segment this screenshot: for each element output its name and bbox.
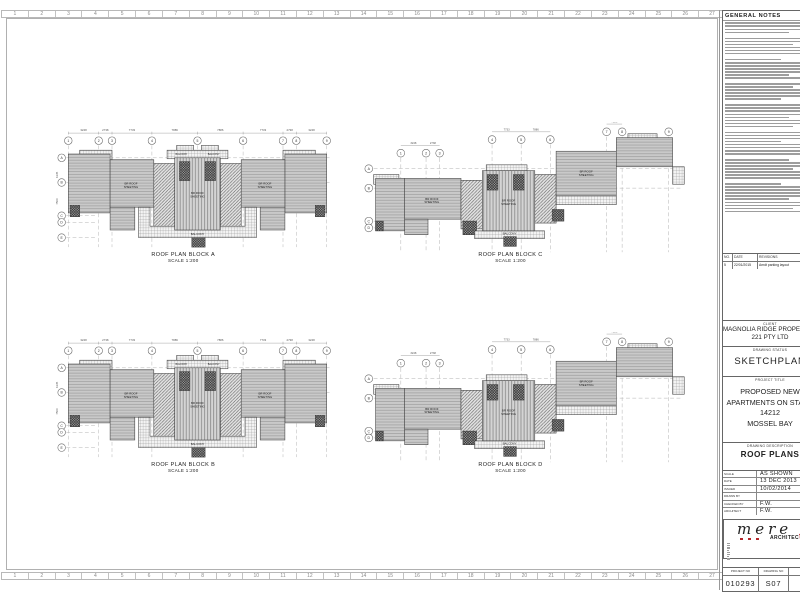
- drawing-status-panel: DRAWING STATUS SKETCHPLAN: [723, 347, 800, 377]
- drawing-frame-border: [6, 18, 718, 570]
- plan-scale: SCALE 1:200: [55, 258, 312, 263]
- ruler-number: 4: [82, 11, 109, 17]
- microtext-line: [725, 144, 800, 146]
- svg-text:2738: 2738: [102, 128, 109, 132]
- microtext-line: [725, 50, 800, 52]
- microtext-line: [725, 41, 800, 43]
- ruler-number: 21: [538, 11, 565, 17]
- ruler-number: 11: [270, 11, 297, 17]
- svg-text:SHEETING: SHEETING: [579, 173, 595, 177]
- footer-headers: PROJECT NO DRAWING NO REV: [723, 568, 800, 576]
- microtext-line: [725, 83, 800, 85]
- ruler-number: 18: [458, 11, 485, 17]
- ruler-number: 14: [351, 573, 378, 579]
- svg-text:6: 6: [549, 138, 551, 142]
- ruler-number: 21: [538, 573, 565, 579]
- info-label: ARCHITECT: [723, 508, 757, 515]
- ruler-number: 7: [163, 573, 190, 579]
- svg-text:SHEETING: SHEETING: [424, 410, 440, 414]
- svg-text:6135: 6135: [55, 381, 59, 388]
- svg-text:7733: 7733: [260, 128, 267, 132]
- ruler-number: 2: [29, 11, 56, 17]
- drawing-status-value: SKETCHPLAN: [723, 356, 800, 367]
- ruler-number: 5: [109, 11, 136, 17]
- svg-text:3: 3: [111, 349, 113, 353]
- microtext-line: [727, 550, 729, 551]
- microtext-line: [725, 74, 789, 76]
- ruler-number: 1: [2, 573, 29, 579]
- microtext-line: [727, 543, 730, 544]
- microtext-line: [725, 86, 793, 88]
- svg-text:BALCONY: BALCONY: [208, 363, 220, 366]
- ruler-number: 3: [56, 11, 83, 17]
- svg-text:BALCONY: BALCONY: [191, 442, 205, 446]
- svg-text:3248: 3248: [410, 141, 417, 145]
- info-row: ARCHITECTF.W.: [723, 508, 800, 515]
- microtext-line: [725, 150, 800, 152]
- microtext-line: [725, 153, 800, 155]
- ruler-number: 20: [511, 11, 538, 17]
- project-title-label: PROJECT TITLE: [723, 378, 800, 382]
- microtext-line: [725, 192, 800, 194]
- plan-caption: ROOF PLAN BLOCK BSCALE 1:200: [55, 462, 312, 473]
- svg-text:BALCONY: BALCONY: [175, 363, 187, 366]
- svg-text:SHEETING: SHEETING: [501, 202, 517, 206]
- svg-text:7733: 7733: [129, 128, 136, 132]
- info-row: DRAWN BY: [723, 493, 800, 500]
- info-label: DATE: [723, 478, 757, 484]
- roof-plan-drawing: 1 2 3 4 5 6 7 8 9 A B C D324827387733788…: [362, 122, 692, 262]
- microtext-line: [725, 123, 800, 125]
- svg-text:7886: 7886: [217, 128, 224, 132]
- ruler-number: 12: [297, 573, 324, 579]
- microtext-line: [725, 120, 800, 122]
- ruler-number: 13: [324, 11, 351, 17]
- microtext-line: [725, 211, 800, 213]
- project-title-line: PROPOSED NEW: [723, 387, 800, 398]
- logo-red-dot: [740, 538, 743, 541]
- info-row: SCALEAS SHOWN: [723, 471, 800, 478]
- general-notes-microtext: [723, 22, 800, 212]
- ruler-number: 24: [619, 573, 646, 579]
- svg-text:3248: 3248: [80, 338, 87, 342]
- footer-values: 010293 S07: [723, 576, 800, 592]
- microtext-line: [725, 208, 793, 210]
- drawing-description-panel: DRAWING DESCRIPTION ROOF PLANS: [723, 443, 800, 471]
- microtext-line: [725, 195, 800, 197]
- revision-cell: 22/01/2015: [733, 262, 758, 269]
- roof-plan-drawing: 1 2 3 4 5 6 7 8 9 A B C D324827387733788…: [362, 332, 692, 472]
- microtext-line: [725, 107, 800, 109]
- svg-text:2738: 2738: [286, 338, 293, 342]
- ruler-number: 22: [565, 11, 592, 17]
- info-label: SCALE: [723, 471, 757, 477]
- svg-text:3248: 3248: [410, 351, 417, 355]
- microtext-line: [725, 32, 789, 34]
- svg-text:7886: 7886: [172, 338, 179, 342]
- project-title-panel: PROJECT TITLE PROPOSED NEWAPARTMENTS ON …: [723, 377, 800, 443]
- svg-text:4: 4: [151, 139, 153, 143]
- microtext-line: [725, 114, 800, 116]
- svg-text:SHEETING: SHEETING: [190, 404, 205, 408]
- svg-text:7733: 7733: [129, 338, 136, 342]
- svg-text:SHEETING: SHEETING: [190, 194, 205, 198]
- info-label: DRAWN BY: [723, 493, 757, 499]
- info-row: DATE13 DEC 2013: [723, 478, 800, 485]
- ruler-number: 8: [190, 11, 217, 17]
- svg-text:4: 4: [491, 138, 493, 142]
- ruler-bottom: 1234567891011121314151617181920212223242…: [1, 572, 734, 580]
- svg-text:7733: 7733: [504, 127, 511, 131]
- svg-text:4: 4: [151, 349, 153, 353]
- plan-caption: ROOF PLAN BLOCK CSCALE 1:200: [362, 252, 659, 263]
- ruler-number: 14: [351, 11, 378, 17]
- title-block-divider: [719, 10, 720, 590]
- ruler-number: 26: [672, 573, 699, 579]
- info-label: ISSUED: [723, 486, 757, 492]
- svg-text:2: 2: [98, 139, 100, 143]
- ruler-number: 3: [56, 573, 83, 579]
- info-value: F.W.: [757, 501, 800, 507]
- microtext-line: [725, 68, 800, 70]
- svg-text:3: 3: [111, 139, 113, 143]
- svg-text:SHEETING: SHEETING: [424, 200, 440, 204]
- svg-text:9: 9: [668, 130, 670, 134]
- ruler-number: 17: [431, 11, 458, 17]
- svg-text:9: 9: [326, 139, 328, 143]
- drawing-description-label: DRAWING DESCRIPTION: [723, 444, 800, 448]
- svg-text:7: 7: [282, 139, 284, 143]
- info-row: CHECKED BYF.W.: [723, 501, 800, 508]
- svg-text:2: 2: [98, 349, 100, 353]
- info-value: AS SHOWN: [757, 471, 800, 477]
- svg-text:BALCONY: BALCONY: [191, 232, 205, 236]
- svg-text:SHEETING: SHEETING: [124, 395, 139, 399]
- ruler-number: 19: [485, 573, 512, 579]
- project-title-line: MOSSEL BAY: [723, 419, 800, 430]
- svg-text:5: 5: [197, 349, 199, 353]
- ruler-number: 23: [592, 573, 619, 579]
- revisions-header: NO. DATE REVISIONS: [723, 254, 800, 262]
- ruler-number: 24: [619, 11, 646, 17]
- svg-text:7500: 7500: [55, 408, 59, 415]
- ruler-number: 26: [672, 11, 699, 17]
- ruler-number: 11: [270, 573, 297, 579]
- svg-text:7886: 7886: [217, 338, 224, 342]
- svg-text:BALCONY: BALCONY: [208, 153, 220, 156]
- ruler-number: 7: [163, 11, 190, 17]
- architect-logo-box: mere ARCHITECtURE: [723, 519, 800, 559]
- revisions-col-desc: REVISIONS: [758, 254, 800, 261]
- microtext-line: [725, 117, 789, 119]
- svg-text:6: 6: [549, 348, 551, 352]
- microtext-line: [725, 29, 800, 31]
- info-value: 10/02/2014: [757, 486, 800, 492]
- svg-text:1: 1: [400, 151, 402, 155]
- revision-cell: Amdt parking layout: [758, 262, 800, 269]
- project-no-label: PROJECT NO: [723, 568, 759, 576]
- svg-text:3248: 3248: [308, 338, 315, 342]
- roof-plan-block-c: 1 2 3 4 5 6 7 8 9 A B C D324827387733788…: [362, 122, 692, 262]
- svg-text:2738: 2738: [430, 351, 437, 355]
- microtext-line: [725, 22, 800, 24]
- svg-text:SHEETING: SHEETING: [501, 412, 517, 416]
- svg-text:7886: 7886: [611, 122, 618, 124]
- revisions-rows: 522/01/2015Amdt parking layout: [723, 262, 800, 269]
- info-value: F.W.: [757, 508, 800, 515]
- svg-text:2: 2: [425, 151, 427, 155]
- revision-row: 522/01/2015Amdt parking layout: [723, 262, 800, 269]
- svg-text:8: 8: [295, 139, 297, 143]
- svg-text:1: 1: [400, 361, 402, 365]
- logo-red-dot: [756, 538, 759, 541]
- microtext-line: [725, 98, 781, 100]
- microtext-line: [727, 552, 730, 553]
- plan-scale: SCALE 1:200: [362, 258, 659, 263]
- plan-caption: ROOF PLAN BLOCK DSCALE 1:200: [362, 462, 659, 473]
- ruler-number: 16: [404, 11, 431, 17]
- ruler-number: 9: [217, 573, 244, 579]
- plan-scale: SCALE 1:200: [55, 468, 312, 473]
- client-panel: CLIENT MAGNOLIA RIDGE PROPERTIES221 PTY …: [723, 321, 800, 347]
- general-notes-title: GENERAL NOTES: [723, 11, 800, 21]
- roof-plan-block-a: 32482738773378867886773327383248 1 2 3 4…: [55, 122, 340, 262]
- svg-text:7886: 7886: [533, 337, 540, 341]
- info-value: 13 DEC 2013: [757, 478, 800, 484]
- info-label: CHECKED BY: [723, 501, 757, 507]
- client-name: MAGNOLIA RIDGE PROPERTIES221 PTY LTD: [723, 326, 800, 342]
- roof-plan-drawing: 32482738773378867886773327383248 1 2 3 4…: [55, 332, 340, 472]
- drawing-sheet: 1234567891011121314151617181920212223242…: [0, 0, 800, 600]
- revisions-col-date: DATE: [733, 254, 758, 261]
- architect-address-microtext: [724, 542, 727, 560]
- microtext-line: [725, 92, 800, 94]
- microtext-line: [725, 95, 800, 97]
- svg-text:5: 5: [520, 138, 522, 142]
- ruler-number: 19: [485, 11, 512, 17]
- info-table: SCALEAS SHOWNDATE13 DEC 2013ISSUED10/02/…: [723, 471, 800, 516]
- svg-text:3: 3: [439, 151, 441, 155]
- ruler-number: 17: [431, 573, 458, 579]
- ruler-number: 8: [190, 573, 217, 579]
- svg-text:6: 6: [242, 349, 244, 353]
- microtext-line: [725, 205, 800, 207]
- ruler-number: 6: [136, 11, 163, 17]
- svg-text:1: 1: [67, 349, 69, 353]
- svg-text:6: 6: [242, 139, 244, 143]
- svg-text:6135: 6135: [55, 171, 59, 178]
- microtext-line: [725, 198, 789, 200]
- svg-text:4: 4: [491, 348, 493, 352]
- microtext-line: [727, 554, 730, 555]
- svg-text:7886: 7886: [611, 332, 618, 334]
- microtext-line: [725, 38, 800, 40]
- microtext-line: [725, 165, 800, 167]
- microtext-line: [725, 177, 800, 179]
- svg-text:7733: 7733: [260, 338, 267, 342]
- microtext-line: [725, 59, 781, 61]
- svg-text:5: 5: [197, 139, 199, 143]
- ruler-number: 20: [511, 573, 538, 579]
- microtext-line: [725, 147, 800, 149]
- architect-logo-wordmark: ARCHITECtURE: [770, 531, 800, 541]
- svg-text:2738: 2738: [286, 128, 293, 132]
- svg-text:BALCONY: BALCONY: [503, 232, 517, 236]
- microtext-line: [725, 202, 800, 204]
- svg-text:8: 8: [621, 340, 623, 344]
- plan-caption: ROOF PLAN BLOCK ASCALE 1:200: [55, 252, 312, 263]
- ruler-number: 1: [2, 11, 29, 17]
- microtext-line: [725, 135, 800, 137]
- svg-text:2738: 2738: [430, 141, 437, 145]
- svg-text:5: 5: [520, 348, 522, 352]
- microtext-line: [725, 77, 800, 79]
- ruler-number: 2: [29, 573, 56, 579]
- microtext-line: [725, 104, 800, 106]
- ruler-number: 15: [377, 11, 404, 17]
- microtext-line: [725, 159, 789, 161]
- svg-text:8: 8: [621, 130, 623, 134]
- revisions-col-no: NO.: [723, 254, 733, 261]
- microtext-line: [725, 171, 800, 173]
- microtext-line: [725, 126, 793, 128]
- roof-plan-block-d: 1 2 3 4 5 6 7 8 9 A B C D324827387733788…: [362, 332, 692, 472]
- svg-text:9: 9: [326, 349, 328, 353]
- svg-text:7500: 7500: [55, 198, 59, 205]
- ruler-number: 15: [377, 573, 404, 579]
- ruler-number: 5: [109, 573, 136, 579]
- rev-value: [789, 576, 800, 592]
- roof-plan-drawing: 32482738773378867886773327383248 1 2 3 4…: [55, 122, 340, 262]
- general-notes-panel: GENERAL NOTES: [723, 11, 800, 254]
- ruler-number: 18: [458, 573, 485, 579]
- svg-text:9: 9: [668, 340, 670, 344]
- microtext-line: [725, 168, 793, 170]
- microtext-line: [725, 25, 800, 27]
- microtext-line: [725, 162, 800, 164]
- svg-text:3: 3: [439, 361, 441, 365]
- svg-text:3248: 3248: [80, 128, 87, 132]
- svg-text:7733: 7733: [504, 337, 511, 341]
- drawing-no-label: DRAWING NO: [759, 568, 789, 576]
- project-no-value: 010293: [723, 576, 759, 592]
- microtext-line: [725, 65, 800, 67]
- ruler-number: 22: [565, 573, 592, 579]
- revision-cell: 5: [723, 262, 733, 269]
- microtext-line: [725, 89, 800, 91]
- client-name-line: MAGNOLIA RIDGE PROPERTIES: [723, 326, 800, 334]
- svg-text:SHEETING: SHEETING: [124, 185, 139, 189]
- project-title-line: APARTMENTS ON STAND: [723, 398, 800, 409]
- project-title-line: 14212: [723, 408, 800, 419]
- svg-text:2738: 2738: [102, 338, 109, 342]
- ruler-number: 13: [324, 573, 351, 579]
- svg-text:BALCONY: BALCONY: [503, 442, 517, 446]
- microtext-line: [725, 186, 800, 188]
- svg-text:1: 1: [67, 139, 69, 143]
- ruler-number: 4: [82, 573, 109, 579]
- info-value: [757, 493, 800, 499]
- microtext-line: [725, 183, 781, 185]
- rev-label: REV: [789, 568, 800, 576]
- title-block: GENERAL NOTES NO. DATE REVISIONS 522/01/…: [722, 10, 800, 592]
- ruler-number: 25: [646, 573, 673, 579]
- microtext-line: [727, 558, 730, 559]
- microtext-line: [725, 138, 800, 140]
- svg-text:SHEETING: SHEETING: [258, 395, 273, 399]
- drawing-no-value: S07: [759, 576, 789, 592]
- svg-text:SHEETING: SHEETING: [258, 185, 273, 189]
- microtext-line: [725, 189, 800, 191]
- microtext-line: [725, 62, 800, 64]
- svg-text:2: 2: [425, 361, 427, 365]
- svg-text:7: 7: [606, 340, 608, 344]
- ruler-number: 12: [297, 11, 324, 17]
- footer-numbers: PROJECT NO DRAWING NO REV 010293 S07: [723, 567, 800, 592]
- microtext-line: [727, 545, 730, 546]
- microtext-line: [725, 53, 800, 55]
- microtext-line: [727, 556, 729, 557]
- drawing-description-value: ROOF PLANS: [723, 450, 800, 459]
- svg-text:8: 8: [295, 349, 297, 353]
- ruler-number: 25: [646, 11, 673, 17]
- info-row: ISSUED10/02/2014: [723, 486, 800, 493]
- ruler-number: 9: [217, 11, 244, 17]
- roof-plan-block-b: 32482738773378867886773327383248 1 2 3 4…: [55, 332, 340, 472]
- ruler-top: 1234567891011121314151617181920212223242…: [1, 10, 734, 18]
- plan-scale: SCALE 1:200: [362, 468, 659, 473]
- microtext-line: [725, 71, 800, 73]
- ruler-number: 23: [592, 11, 619, 17]
- ruler-number: 16: [404, 573, 431, 579]
- svg-text:SHEETING: SHEETING: [579, 383, 595, 387]
- microtext-line: [725, 132, 800, 134]
- microtext-line: [725, 174, 800, 176]
- svg-text:3248: 3248: [308, 128, 315, 132]
- logo-red-dot: [748, 538, 751, 541]
- project-title-value: PROPOSED NEWAPARTMENTS ON STAND14212MOSS…: [723, 387, 800, 429]
- microtext-line: [725, 110, 800, 112]
- microtext-line: [725, 44, 793, 46]
- ruler-number: 10: [243, 11, 270, 17]
- ruler-number: 6: [136, 573, 163, 579]
- drawing-status-label: DRAWING STATUS: [723, 348, 800, 352]
- svg-text:BALCONY: BALCONY: [175, 153, 187, 156]
- svg-text:7886: 7886: [533, 127, 540, 131]
- client-name-line: 221 PTY LTD: [723, 334, 800, 342]
- microtext-line: [725, 47, 800, 49]
- microtext-line: [725, 141, 781, 143]
- ruler-number: 10: [243, 573, 270, 579]
- microtext-line: [727, 547, 730, 548]
- svg-text:7: 7: [606, 130, 608, 134]
- revisions-table: NO. DATE REVISIONS 522/01/2015Amdt parki…: [723, 254, 800, 321]
- svg-text:7: 7: [282, 349, 284, 353]
- svg-text:7886: 7886: [172, 128, 179, 132]
